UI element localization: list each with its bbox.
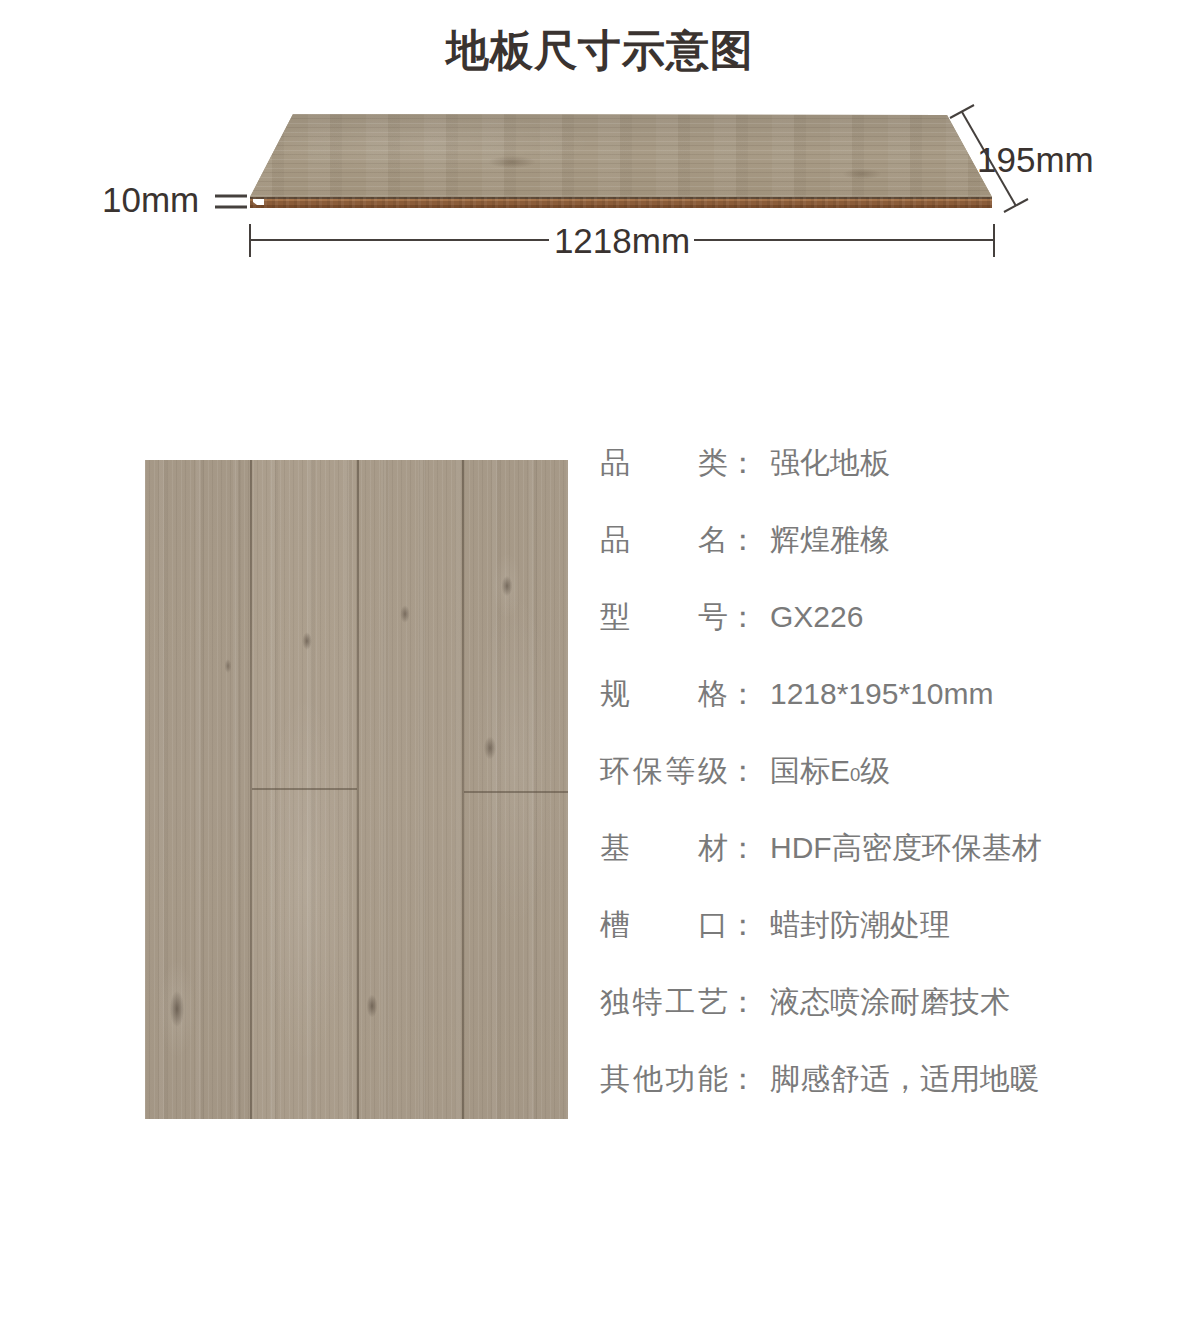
spec-label: 其他功能 <box>600 1063 728 1095</box>
spec-row: 基材 ： HDF高密度环保基材 <box>600 832 1042 864</box>
spec-row: 型号 ： GX226 <box>600 601 1042 633</box>
spec-label: 品类 <box>600 447 728 479</box>
spec-list: 品类 ： 强化地板 品名 ： 辉煌雅橡 型号 ： GX226 规格 ： 1218… <box>600 447 1042 1140</box>
thickness-dimension-label: 10mm <box>102 182 199 217</box>
spec-value: 强化地板 <box>770 447 890 479</box>
spec-row: 其他功能 ： 脚感舒适，适用地暖 <box>600 1063 1042 1095</box>
wood-knots-overlay <box>145 460 568 1119</box>
width-dimension-label: 195mm <box>977 142 1094 177</box>
spec-value: 蜡封防潮处理 <box>770 909 950 941</box>
spec-value: 液态喷涂耐磨技术 <box>770 986 1010 1018</box>
spec-colon: ： <box>728 909 758 941</box>
spec-row: 品类 ： 强化地板 <box>600 447 1042 479</box>
spec-row: 规格 ： 1218*195*10mm <box>600 678 1042 710</box>
spec-colon: ： <box>728 601 758 633</box>
spec-label: 独特工艺 <box>600 986 728 1018</box>
product-spec-page: 地板尺寸示意图 10mm 195mm <box>0 0 1200 1323</box>
product-texture-photo <box>145 460 568 1119</box>
spec-label: 槽口 <box>600 909 728 941</box>
floor-plank-illustration <box>250 114 992 209</box>
plank-front-edge <box>250 197 992 208</box>
spec-label: 规格 <box>600 678 728 710</box>
spec-row: 独特工艺 ： 液态喷涂耐磨技术 <box>600 986 1042 1018</box>
spec-label: 品名 <box>600 524 728 556</box>
spec-value: GX226 <box>770 601 863 633</box>
spec-row: 槽口 ： 蜡封防潮处理 <box>600 909 1042 941</box>
spec-value: HDF高密度环保基材 <box>770 832 1042 864</box>
spec-colon: ： <box>728 755 758 787</box>
spec-colon: ： <box>728 1063 758 1095</box>
dimension-diagram: 10mm 195mm 1218mm <box>0 0 1200 300</box>
plank-top-face <box>250 114 992 197</box>
spec-label: 环保等级 <box>600 755 728 787</box>
length-dimension-label: 1218mm <box>548 223 696 258</box>
spec-row: 环保等级 ： 国标E0级 <box>600 755 1042 787</box>
thickness-dimension-ticks <box>215 196 247 207</box>
spec-value: 辉煌雅橡 <box>770 524 890 556</box>
spec-value: 1218*195*10mm <box>770 678 994 710</box>
spec-colon: ： <box>728 447 758 479</box>
spec-colon: ： <box>728 832 758 864</box>
spec-colon: ： <box>728 524 758 556</box>
spec-label: 基材 <box>600 832 728 864</box>
spec-value: 国标E0级 <box>770 755 890 791</box>
spec-colon: ： <box>728 678 758 710</box>
spec-value: 脚感舒适，适用地暖 <box>770 1063 1040 1095</box>
spec-label: 型号 <box>600 601 728 633</box>
spec-colon: ： <box>728 986 758 1018</box>
spec-row: 品名 ： 辉煌雅橡 <box>600 524 1042 556</box>
